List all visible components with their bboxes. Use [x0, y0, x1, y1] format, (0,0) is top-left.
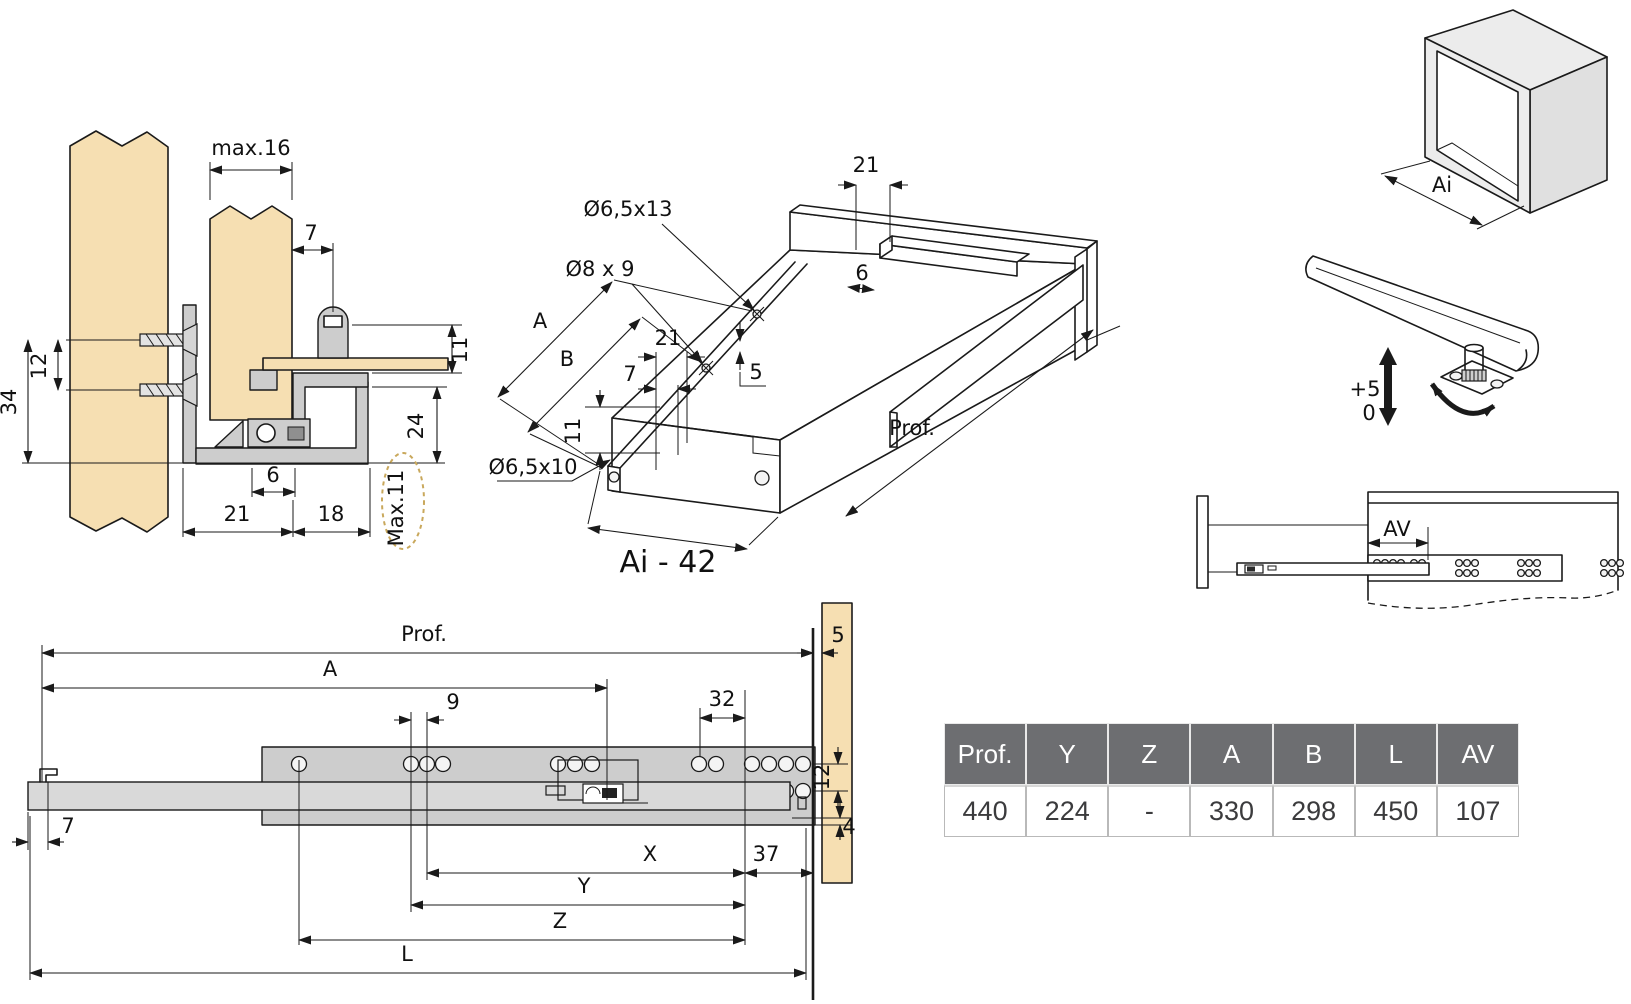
dim-32: 32: [709, 687, 736, 711]
drawing-canvas: max.16 7 12 34 11 24 6 21 18 Max.11: [0, 0, 1631, 1004]
cabinet-side-panel: [70, 131, 168, 532]
dim-11: 11: [448, 337, 472, 364]
dim-7-side: 7: [61, 814, 74, 838]
dim-21-top: 21: [853, 153, 880, 177]
dim-11-iso: 11: [561, 418, 585, 445]
table-cell: 330: [1190, 785, 1272, 837]
cabinet-iso-view: Ai: [1381, 10, 1607, 229]
adjust-cam-block: [288, 427, 304, 440]
vertical-adjust-arrow: [1379, 347, 1397, 426]
label-hole-front: Ø6,5x10: [488, 455, 577, 479]
dim-18: 18: [318, 502, 345, 526]
locating-pin: [318, 307, 348, 358]
front-face-hole: [755, 471, 769, 485]
slide-wedge: [215, 421, 243, 447]
dimensions-table: Prof. Y Z A B L AV 440 224 - 330 298 450…: [944, 723, 1519, 837]
dim-34: 34: [0, 389, 21, 416]
table-header-cell: Z: [1108, 723, 1190, 785]
table-header-cell: B: [1273, 723, 1355, 785]
label-hole-top: Ø6,5x13: [583, 197, 672, 221]
coupling-stud: [250, 370, 277, 390]
height-adjustment-view: +5 0: [1306, 256, 1538, 426]
drawer-bottom-section: [263, 358, 448, 370]
dim-av: AV: [1383, 517, 1411, 541]
table-header-cell: Y: [1026, 723, 1108, 785]
slide-side-view: Prof. A 9 32 5 12 4 X 37 Y Z: [12, 603, 856, 1000]
dim-7-iso: 7: [623, 362, 636, 386]
dim-prof-iso: Prof.: [889, 416, 935, 440]
locating-pin-slot: [324, 316, 342, 327]
dim-Y: Y: [577, 874, 591, 898]
dim-X: X: [643, 842, 657, 866]
table-cell: 224: [1026, 785, 1108, 837]
drawer-rail-hook: [40, 769, 57, 782]
table-cell: 440: [944, 785, 1026, 837]
table-cell: 298: [1273, 785, 1355, 837]
dim-37: 37: [753, 842, 780, 866]
table-header-cell: AV: [1437, 723, 1519, 785]
table-header-cell: L: [1355, 723, 1437, 785]
dim-A-side: A: [323, 657, 338, 681]
drawer-bottom-iso-view: Ø6,5x13 Ø8 x 9 Ø6,5x10 A B Prof. Ai - 42…: [488, 153, 1120, 580]
dim-L: L: [401, 942, 413, 966]
dim-9: 9: [446, 690, 459, 714]
dimensions-table-header: Prof. Y Z A B L AV: [944, 723, 1519, 785]
dim-21-left: 21: [655, 326, 682, 350]
cross-section-view: max.16 7 12 34 11 24 6 21 18 Max.11: [0, 131, 472, 549]
adjust-cam-wheel: [257, 424, 275, 442]
dim-4: 4: [842, 815, 855, 839]
pulled-out-rail: [1237, 563, 1429, 575]
dim-5-side: 5: [831, 623, 844, 647]
dim-A-iso: A: [533, 309, 548, 333]
table-cell: -: [1108, 785, 1190, 837]
adjust-rail: [1306, 256, 1538, 371]
dim-21: 21: [224, 502, 251, 526]
hole-front-tab: [609, 472, 619, 482]
dim-7: 7: [304, 221, 317, 245]
dim-B-iso: B: [560, 347, 574, 371]
label-zero: 0: [1362, 401, 1375, 425]
dim-5-iso: 5: [749, 360, 762, 384]
dim-Z: Z: [553, 909, 567, 933]
dim-6-iso: 6: [855, 261, 868, 285]
cabinet-break-line: [1368, 590, 1618, 608]
dimensions-table-row: 440 224 - 330 298 450 107: [944, 785, 1519, 837]
dim-ai-cabinet: Ai: [1432, 173, 1452, 197]
label-plus5: +5: [1350, 377, 1381, 401]
technical-drawing-sheet: max.16 7 12 34 11 24 6 21 18 Max.11: [0, 0, 1631, 1004]
dim-12-side: 12: [810, 764, 834, 791]
dim-ai42: Ai - 42: [620, 545, 717, 580]
drawer-front-panel: [1197, 496, 1208, 588]
dim-max16: max.16: [211, 136, 290, 160]
dim-24: 24: [404, 413, 428, 440]
table-cell: 450: [1355, 785, 1437, 837]
label-hole-mid: Ø8 x 9: [565, 257, 634, 281]
extension-side-view: AV: [1197, 492, 1623, 608]
dim-12: 12: [27, 353, 51, 380]
drawer-rail: [28, 782, 790, 810]
dim-prof-side: Prof.: [401, 622, 447, 646]
table-cell: 107: [1437, 785, 1519, 837]
dim-max11: Max.11: [384, 470, 408, 547]
dim-6: 6: [266, 463, 279, 487]
table-header-cell: Prof.: [944, 723, 1026, 785]
table-header-cell: A: [1190, 723, 1272, 785]
